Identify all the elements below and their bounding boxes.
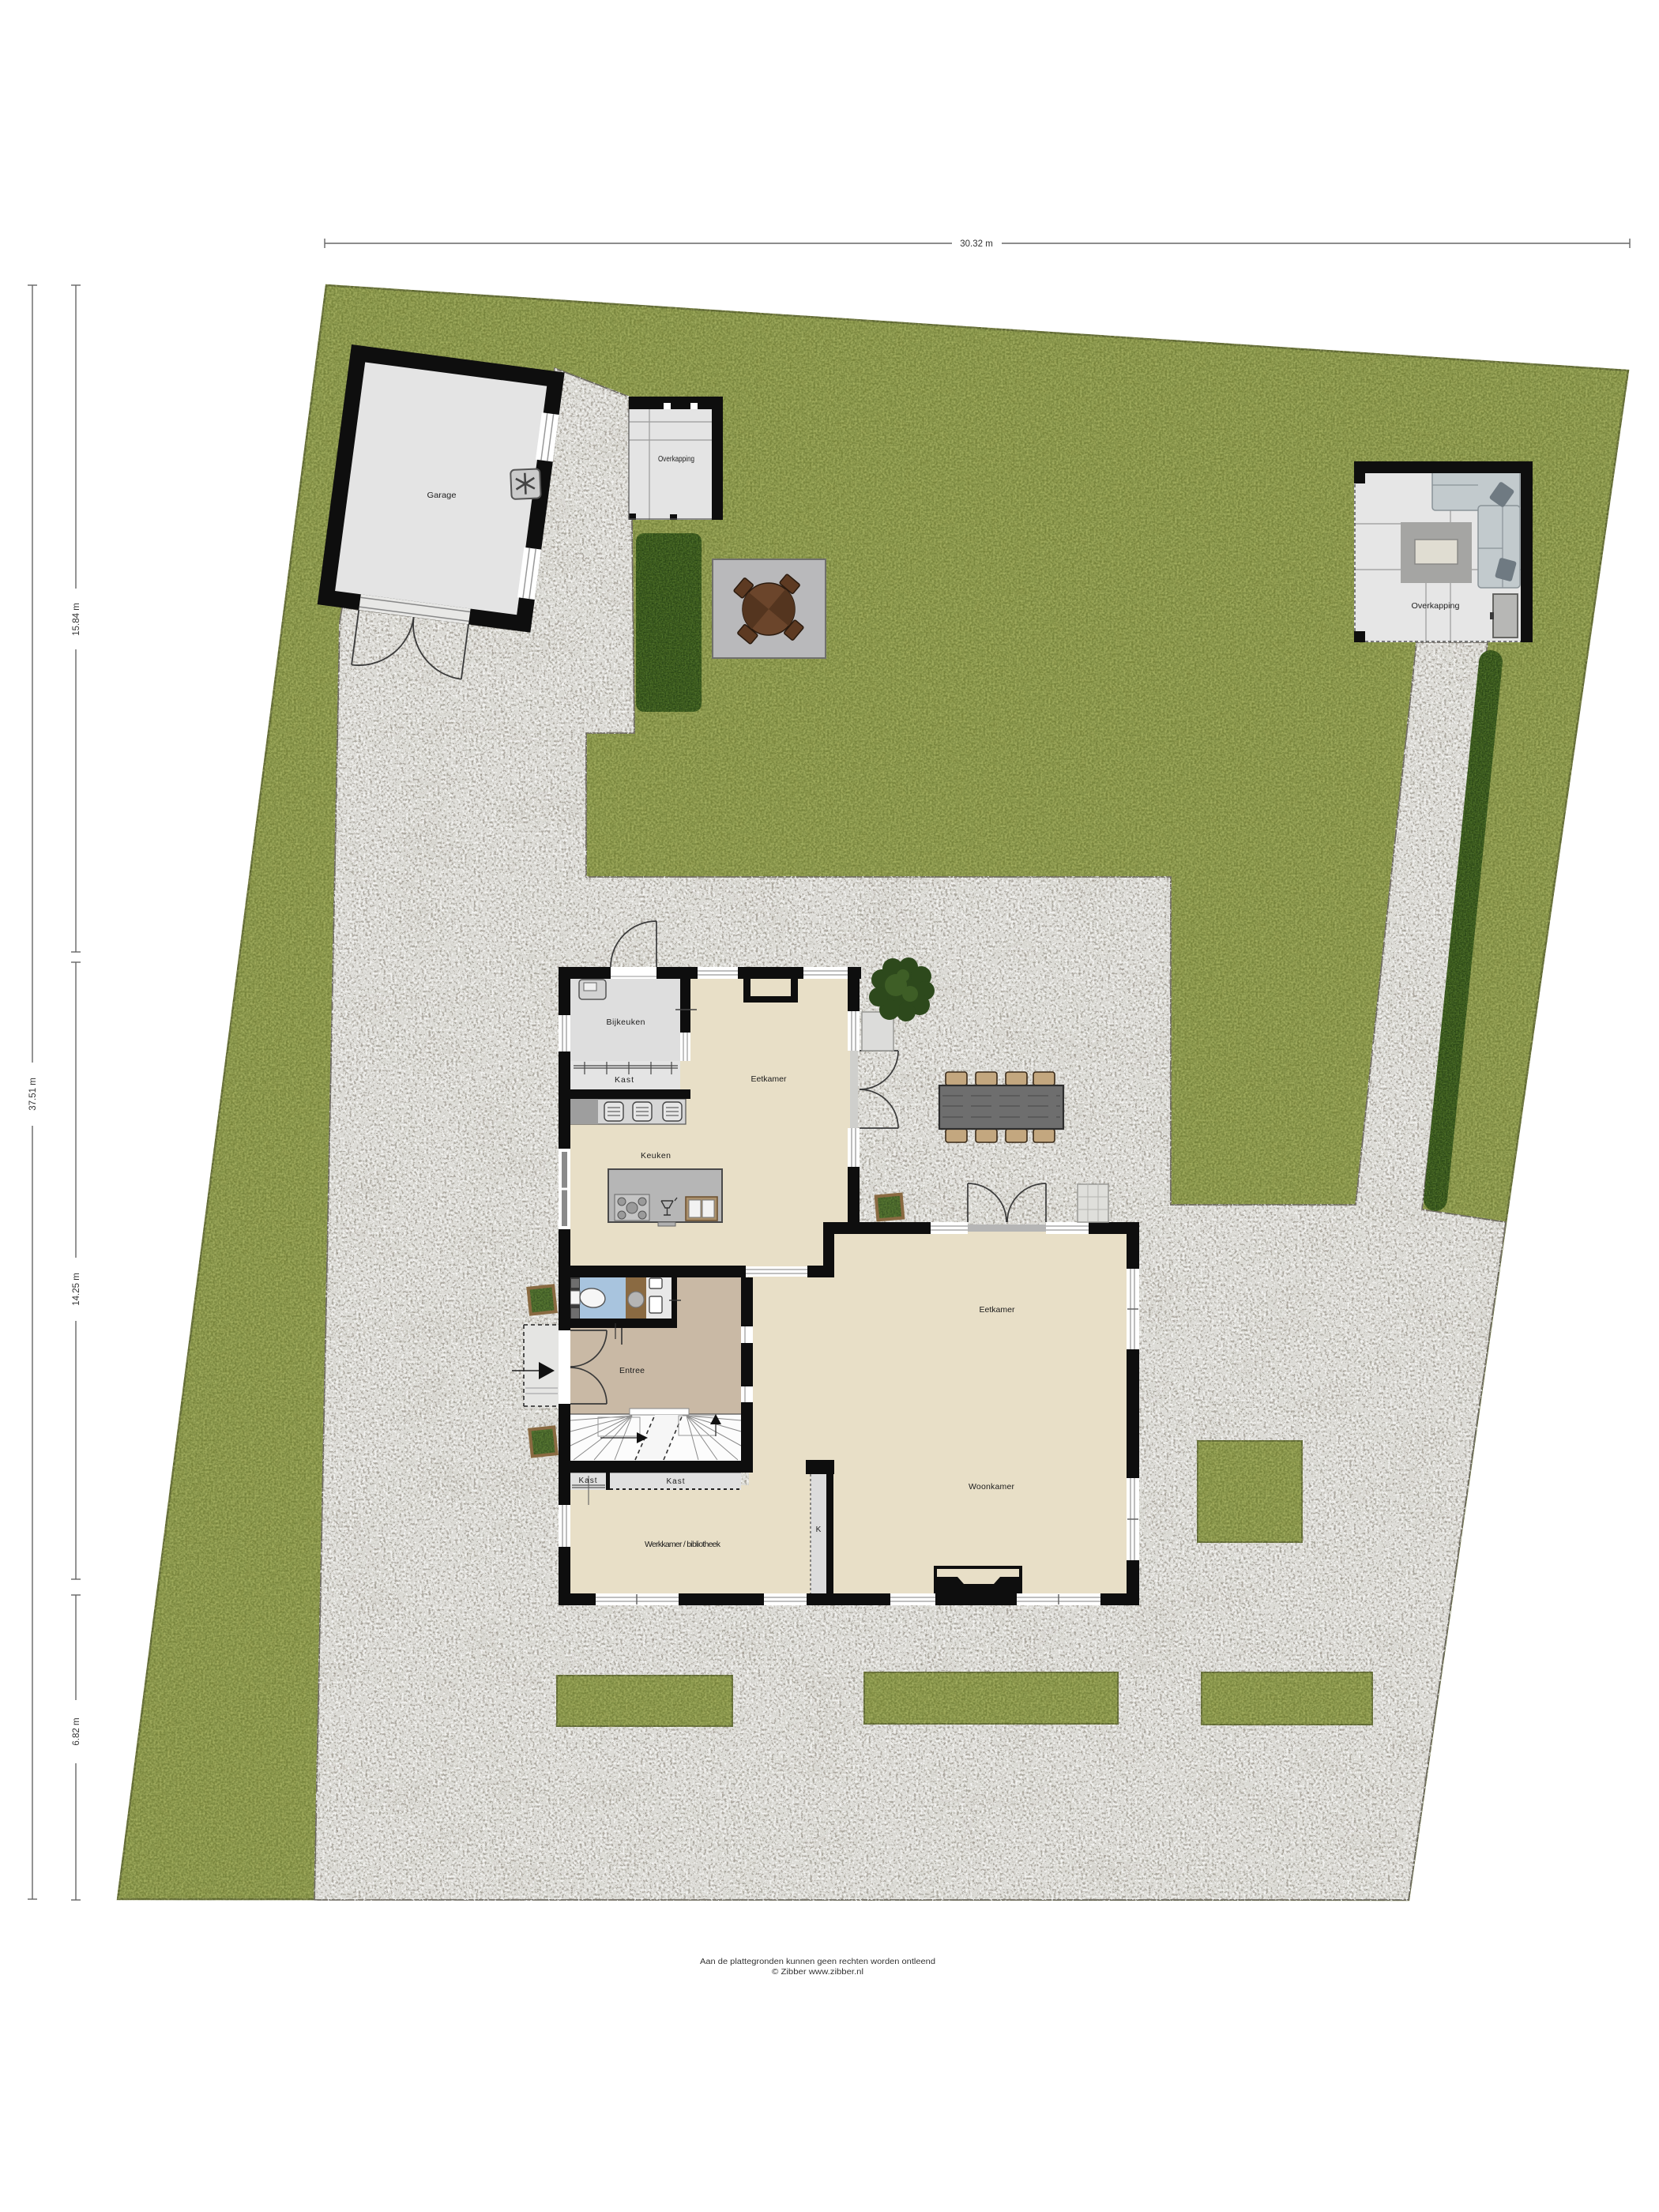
svg-text:14.25 m: 14.25 m bbox=[72, 1273, 81, 1306]
svg-text:K: K bbox=[816, 1525, 822, 1534]
svg-text:Entree: Entree bbox=[619, 1366, 645, 1375]
svg-text:© Zibber www.zibber.nl: © Zibber www.zibber.nl bbox=[772, 1968, 863, 1977]
svg-text:Kast: Kast bbox=[579, 1477, 597, 1485]
svg-text:Kast: Kast bbox=[667, 1477, 685, 1486]
svg-text:37.51 m: 37.51 m bbox=[28, 1078, 38, 1111]
svg-text:Eetkamer: Eetkamer bbox=[980, 1305, 1016, 1315]
svg-text:Keuken: Keuken bbox=[641, 1151, 671, 1161]
svg-text:15.84 m: 15.84 m bbox=[72, 603, 81, 636]
svg-text:6.82 m: 6.82 m bbox=[72, 1717, 81, 1745]
svg-text:Overkapping: Overkapping bbox=[658, 455, 694, 464]
svg-text:Woonkamer: Woonkamer bbox=[969, 1482, 1015, 1492]
svg-text:Garage: Garage bbox=[427, 491, 457, 500]
svg-text:Bijkeuken: Bijkeuken bbox=[607, 1018, 645, 1027]
svg-text:Aan de plattegronden kunnen ge: Aan de plattegronden kunnen geen rechten… bbox=[700, 1958, 935, 1966]
svg-text:30.32 m: 30.32 m bbox=[960, 239, 993, 249]
svg-text:Eetkamer: Eetkamer bbox=[751, 1074, 788, 1084]
svg-text:Overkapping: Overkapping bbox=[1412, 601, 1460, 611]
svg-text:Werkkamer / bibliotheek: Werkkamer / bibliotheek bbox=[645, 1540, 721, 1549]
svg-text:Kast: Kast bbox=[615, 1075, 634, 1085]
